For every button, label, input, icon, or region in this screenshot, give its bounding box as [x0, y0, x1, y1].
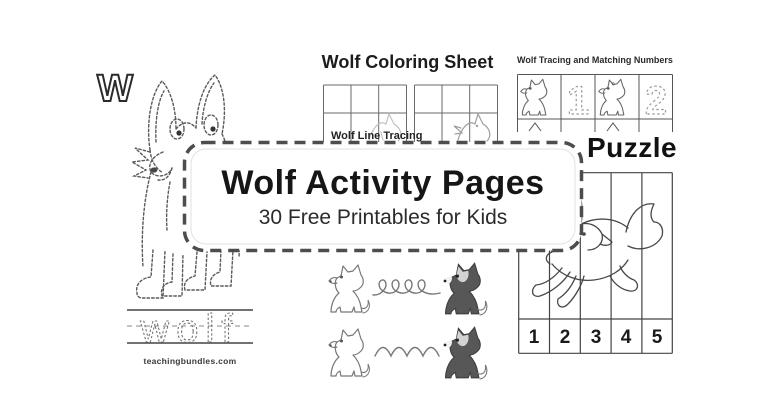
- white-wolf-icon: [328, 326, 372, 378]
- trace-word-text: wolf: [139, 307, 239, 351]
- banner-subtitle: 30 Free Printables for Kids: [259, 207, 508, 228]
- matching-numbers-title: Wolf Tracing and Matching Numbers: [517, 55, 673, 65]
- coloring-sheet-title: Wolf Coloring Sheet: [305, 52, 510, 73]
- puzzle-title: Puzzle: [587, 132, 677, 164]
- puzzle-numbers-row: 1 2 3 4 5: [529, 327, 663, 348]
- wolf-activity-pages-collage: W: [0, 0, 768, 402]
- word-tracing-lines: wolf: [125, 305, 255, 351]
- puzzle-number: 5: [652, 327, 663, 348]
- banner: Wolf Activity Pages 30 Free Printables f…: [182, 140, 584, 253]
- banner-title: Wolf Activity Pages: [221, 166, 544, 200]
- zigzag-tracing-line: [374, 337, 442, 361]
- dotted-number-2: 2: [645, 79, 667, 123]
- dark-wolf-icon: [440, 324, 492, 380]
- matching-numbers-sheet: Wolf Tracing and Matching Numbers 1 2: [508, 50, 768, 135]
- table-wolf-icon: [599, 79, 625, 115]
- puzzle-number: 4: [621, 327, 632, 348]
- dark-wolf-icon: [440, 260, 492, 316]
- loop-tracing-line: [372, 272, 442, 302]
- dotted-number-1: 1: [567, 79, 589, 123]
- matching-numbers-table: 1 2: [517, 74, 673, 132]
- dotted-wolf-paws: [137, 250, 233, 298]
- puzzle-number: 1: [529, 327, 540, 348]
- table-wolf-icon: [521, 79, 547, 115]
- white-wolf-icon: [328, 262, 372, 314]
- puzzle-number: 2: [560, 327, 571, 348]
- website-credit: teachingbundles.com: [125, 356, 255, 366]
- puzzle-number: 3: [591, 327, 602, 348]
